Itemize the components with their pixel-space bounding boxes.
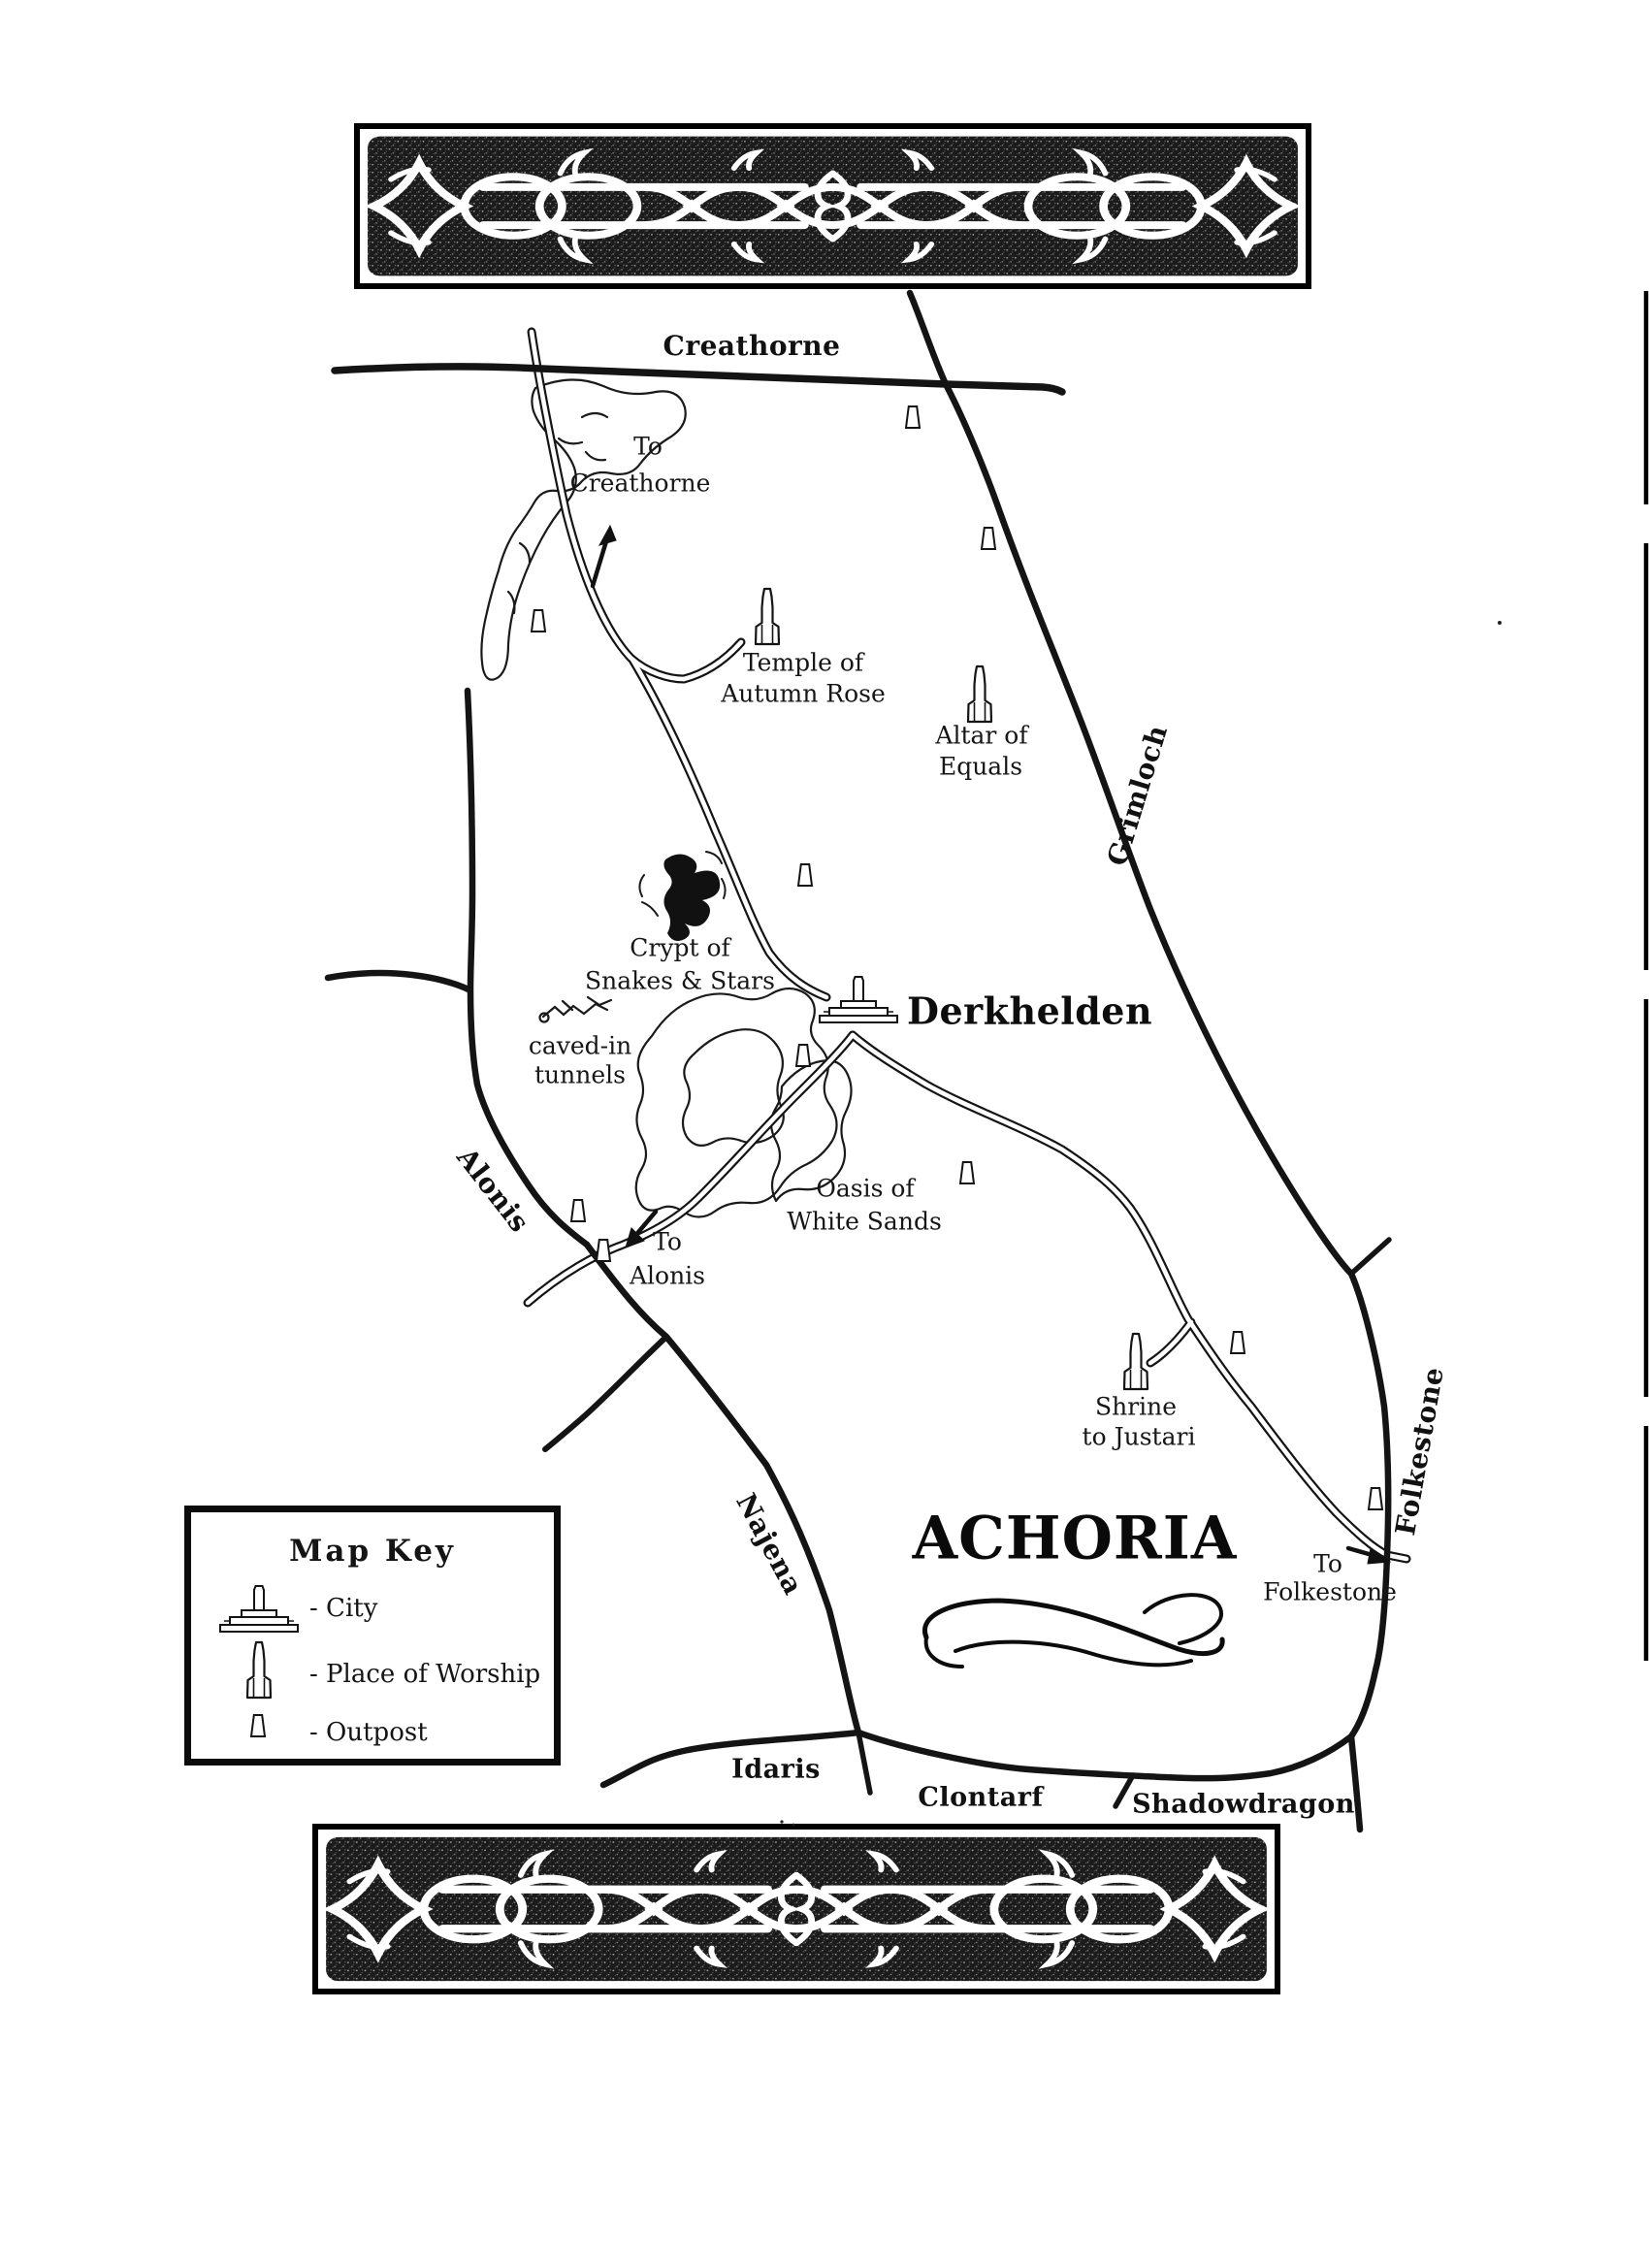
outpost-icon	[1231, 1332, 1245, 1353]
label-shrine-line1: Shrine	[1095, 1395, 1177, 1419]
outpost-icon	[798, 864, 812, 886]
map-key-label-worship: - Place of Worship	[309, 1660, 540, 1689]
outpost-icon	[532, 610, 545, 632]
label-shrine-line2: to Justari	[1083, 1425, 1196, 1449]
label-tunnels-line1: caved-in	[529, 1034, 631, 1058]
label-oasis-line2: White Sands	[787, 1210, 942, 1234]
place-of-worship-icon	[244, 1640, 274, 1701]
lake-outline	[481, 379, 685, 679]
label-crypt-line2: Snakes & Stars	[585, 969, 775, 993]
map-key-row-worship: - Place of Worship	[191, 1636, 554, 1701]
region-label-shadowdragon: Shadowdragon	[1132, 1792, 1355, 1818]
label-altar-line2: Equals	[939, 755, 1022, 779]
caved-in-tunnels-drawing	[540, 997, 612, 1022]
place-of-worship-icon	[1124, 1334, 1148, 1389]
calligraphic-flourish	[924, 1595, 1222, 1667]
label-tunnels-line2: tunnels	[534, 1063, 626, 1087]
outpost-icon	[906, 406, 920, 428]
north-arrow-to-creathorne	[593, 526, 616, 586]
outpost-icon	[597, 1240, 610, 1261]
map-key-label-city: - City	[309, 1594, 377, 1623]
label-crypt-line1: Crypt of	[630, 936, 730, 960]
label-temple-line2: Autumn Rose	[721, 682, 886, 706]
crypt-snake-drawing	[639, 852, 725, 941]
outpost-icon	[960, 1162, 974, 1183]
place-of-worship-icon	[756, 589, 779, 644]
map-key-title: Map Key	[191, 1534, 554, 1569]
label-to-alonis-line1: To	[653, 1230, 682, 1254]
label-temple-line1: Temple of	[743, 651, 863, 675]
label-to-creathorne-line2: Creathorne	[570, 471, 711, 496]
label-to-folkestone-line2: Folkestone	[1263, 1580, 1397, 1604]
region-label-clontarf: Clontarf	[918, 1785, 1043, 1811]
outpost-icon	[247, 1712, 269, 1739]
label-oasis-line1: Oasis of	[816, 1177, 914, 1201]
outpost-icon	[1369, 1488, 1382, 1509]
region-label-creathorne: Creathorne	[663, 333, 841, 360]
map-title: ACHORIA	[913, 1504, 1238, 1572]
city-label-derkhelden: Derkhelden	[907, 989, 1152, 1033]
outpost-icon	[982, 528, 995, 549]
region-label-idaris: Idaris	[731, 1757, 821, 1783]
place-of-worship-icon	[968, 666, 991, 722]
label-altar-line1: Altar of	[935, 724, 1027, 748]
map-key-row-outpost: - Outpost	[191, 1704, 554, 1753]
outpost-icon	[796, 1045, 810, 1066]
label-to-alonis-line2: Alonis	[630, 1264, 705, 1288]
map-key-row-city: - City	[191, 1576, 554, 1635]
map-key-label-outpost: - Outpost	[309, 1718, 428, 1747]
map-key-box: Map Key - City - Place of Worship - Outp…	[184, 1506, 561, 1766]
outpost-icon	[571, 1200, 585, 1221]
city-icon	[820, 977, 897, 1022]
direction-arrows	[593, 526, 1390, 1564]
city-icon	[218, 1584, 300, 1633]
map-page: Creathorne Grimloch Alonis Najena Folkes…	[0, 0, 1649, 2268]
label-to-folkestone-line1: To	[1313, 1552, 1342, 1576]
label-to-creathorne-line1: To	[633, 435, 663, 459]
